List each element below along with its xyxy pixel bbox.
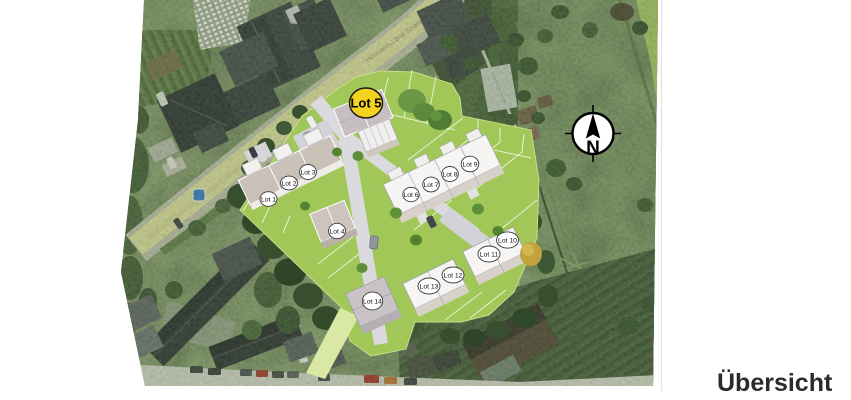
svg-text:Übersicht: Übersicht: [717, 368, 833, 397]
svg-text:Lot 3: Lot 3: [300, 169, 315, 176]
svg-text:Lot 8: Lot 8: [442, 171, 457, 178]
svg-text:Lot 12: Lot 12: [444, 272, 463, 279]
svg-text:Lot 4: Lot 4: [329, 228, 344, 235]
svg-text:Lot 5: Lot 5: [350, 96, 381, 111]
svg-text:Lot 7: Lot 7: [423, 182, 438, 189]
svg-text:Lot 2: Lot 2: [281, 180, 296, 187]
svg-text:Lot 10: Lot 10: [498, 237, 517, 244]
svg-text:Lot 14: Lot 14: [363, 298, 382, 305]
svg-text:Lot 11: Lot 11: [480, 251, 499, 258]
svg-text:Lot 9: Lot 9: [462, 161, 477, 168]
svg-text:Lot 6: Lot 6: [403, 192, 418, 199]
svg-text:Lot 13: Lot 13: [420, 283, 439, 290]
svg-text:Lot 1: Lot 1: [261, 196, 276, 203]
svg-text:N: N: [586, 138, 600, 159]
